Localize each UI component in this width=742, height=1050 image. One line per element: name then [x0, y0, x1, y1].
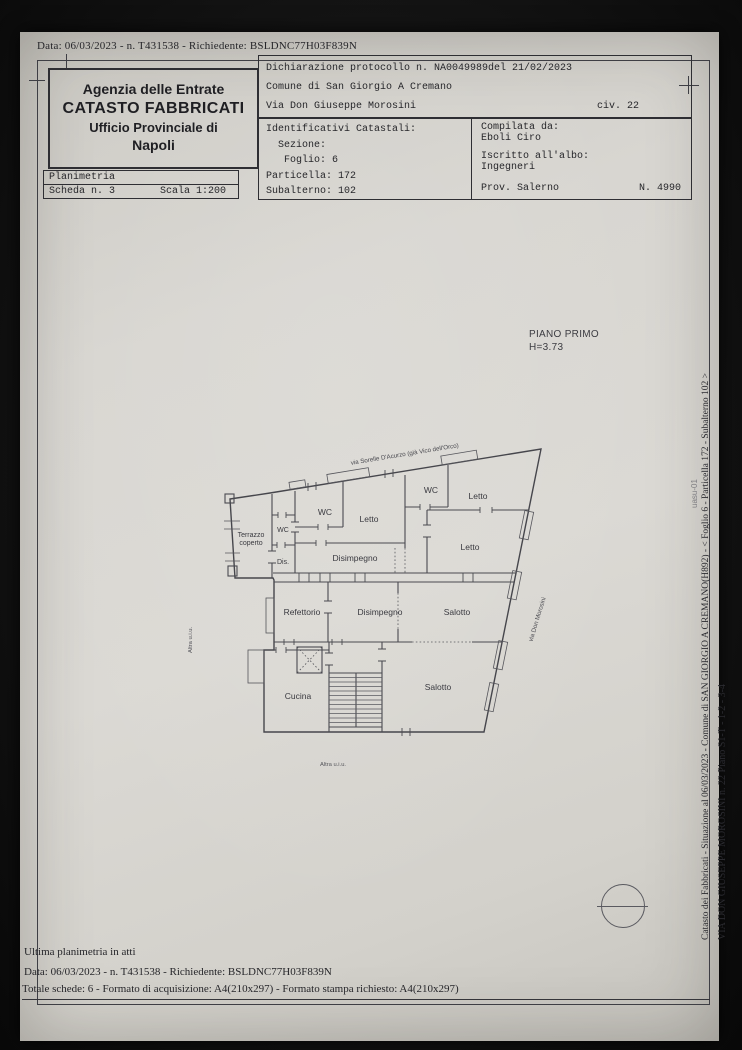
- compiler-column: Compilata da: Eboli Ciro Iscritto all'al…: [471, 119, 691, 199]
- registration-tick-top: [66, 54, 67, 68]
- terrace-pier: [228, 566, 237, 576]
- street-label-top: via Sorelle D'Acurzo (già Vico dell'Orco…: [350, 442, 459, 467]
- room-label-letto-right: Letto: [461, 542, 480, 552]
- room-label-salotto-mid: Salotto: [444, 607, 471, 617]
- sezione-line: Sezione:: [266, 140, 326, 151]
- room-label-disimpegno-upper: Disimpegno: [333, 553, 378, 563]
- stamp-circle: [601, 884, 645, 928]
- catastal-ids-box: Identificativi Catastali: Sezione: Fogli…: [258, 118, 692, 200]
- particella-line: Particella: 172: [266, 171, 356, 182]
- document-sheet: Data: 06/03/2023 - n. T431538 - Richiede…: [20, 32, 719, 1041]
- balcony-left-kitchen: [248, 650, 264, 683]
- room-label-letto-topright: Letto: [469, 491, 488, 501]
- registration-cross-vertical: [37, 72, 39, 88]
- plan-outer-walls: [230, 449, 541, 732]
- declaration-box: Dichiarazione protocollo n. NA0049989del…: [258, 55, 692, 118]
- room-label-wc-center: WC: [318, 507, 332, 517]
- foglio-line: Foglio: 6: [266, 155, 338, 166]
- room-label-dis: Dis.: [277, 559, 289, 566]
- agency-header-box: Agenzia delle Entrate CATASTO FABBRICATI…: [48, 68, 259, 169]
- footer-data-line: Data: 06/03/2023 - n. T431538 - Richiede…: [24, 966, 332, 978]
- agency-name: Agenzia delle Entrate: [50, 81, 257, 97]
- comune-line: Comune di San Giorgio A Cremano: [266, 78, 691, 97]
- protocol-line: Dichiarazione protocollo n. NA0049989del…: [266, 59, 691, 78]
- room-label-wc-small: WC: [277, 527, 289, 534]
- stair-treads-right: [356, 678, 382, 723]
- footer-underline: [22, 999, 710, 1000]
- balcony-right-2: [507, 571, 521, 600]
- planimetria-box: Planimetria Scheda n. 3 Scala 1:200: [43, 170, 239, 199]
- room-label-refettorio: Refettorio: [284, 607, 321, 617]
- province: Prov. Salerno: [481, 183, 559, 194]
- margin-address-line: VIA DON GIUSEPPE MOROSINI n. 22 Piano S1…: [717, 610, 728, 940]
- photo-of-cadastral-document: { "colors": { "paper": "#d8d6d1", "ink":…: [0, 0, 742, 1050]
- window-bay-left: [266, 598, 274, 633]
- margin-catasto-line: Catasto dei Fabbricati - Situazione al 0…: [701, 365, 711, 940]
- balcony-top-1: [327, 468, 370, 484]
- office-line: Ufficio Provinciale di: [50, 120, 257, 135]
- balcony-right-3: [493, 641, 507, 670]
- compiled-by-label: Compilata da:: [481, 122, 681, 133]
- room-label-letto-center: Letto: [360, 514, 379, 524]
- scheda-number: Scheda n. 3: [49, 186, 115, 197]
- civic-number: civ. 22: [597, 97, 639, 116]
- margin-small-mark: uasu-01: [690, 464, 699, 508]
- note-altra-bottom: Altra u.i.u.: [320, 762, 346, 768]
- floor-height: H=3.73: [529, 341, 599, 354]
- room-label-wc-right: WC: [424, 485, 438, 495]
- floor-title-block: PIANO PRIMO H=3.73: [529, 328, 599, 354]
- catasto-title: CATASTO FABBRICATI: [50, 100, 257, 118]
- scale-value: Scala 1:200: [160, 186, 226, 197]
- street-label-right: via Don Morosini: [527, 596, 547, 642]
- room-label-cucina: Cucina: [285, 691, 312, 701]
- floor-title: PIANO PRIMO: [529, 328, 599, 341]
- room-label-terrazzo: Terrazzo: [238, 532, 265, 539]
- catastal-ids-column: Identificativi Catastali: Sezione: Fogli…: [259, 119, 471, 199]
- catastali-title: Identificativi Catastali:: [266, 124, 416, 135]
- compiler-name: Eboli Ciro: [481, 133, 681, 144]
- footer-totale-line: Totale schede: 6 - Formato di acquisizio…: [22, 983, 459, 995]
- stamp-bar: [597, 906, 648, 907]
- room-label-terrazzo2: coperto: [239, 540, 262, 547]
- albo-label: Iscritto all'albo:: [481, 151, 681, 162]
- stair-treads-left: [329, 678, 356, 723]
- planimetria-title: Planimetria: [44, 171, 238, 185]
- room-label-disimpegno-mid: Disimpegno: [358, 607, 403, 617]
- registration-number: N. 4990: [639, 183, 681, 194]
- balcony-right-1: [519, 511, 533, 540]
- street-name: Via Don Giuseppe Morosini: [266, 97, 416, 116]
- scheda-row: Scheda n. 3 Scala 1:200: [44, 185, 238, 197]
- floor-plan-drawing: Terrazzo coperto WC Dis. WC Letto Disimp…: [180, 425, 563, 770]
- subalterno-line: Subalterno: 102: [266, 186, 356, 197]
- room-label-salotto-lower: Salotto: [425, 682, 452, 692]
- albo-value: Ingegneri: [481, 162, 681, 173]
- footer-ultima-line: Ultima planimetria in atti: [24, 946, 136, 958]
- note-altra-left: Altra u.i.u.: [188, 627, 194, 653]
- street-line: Via Don Giuseppe Morosini civ. 22: [266, 97, 691, 116]
- office-city: Napoli: [50, 137, 257, 153]
- request-data-line: Data: 06/03/2023 - n. T431538 - Richiede…: [37, 40, 357, 52]
